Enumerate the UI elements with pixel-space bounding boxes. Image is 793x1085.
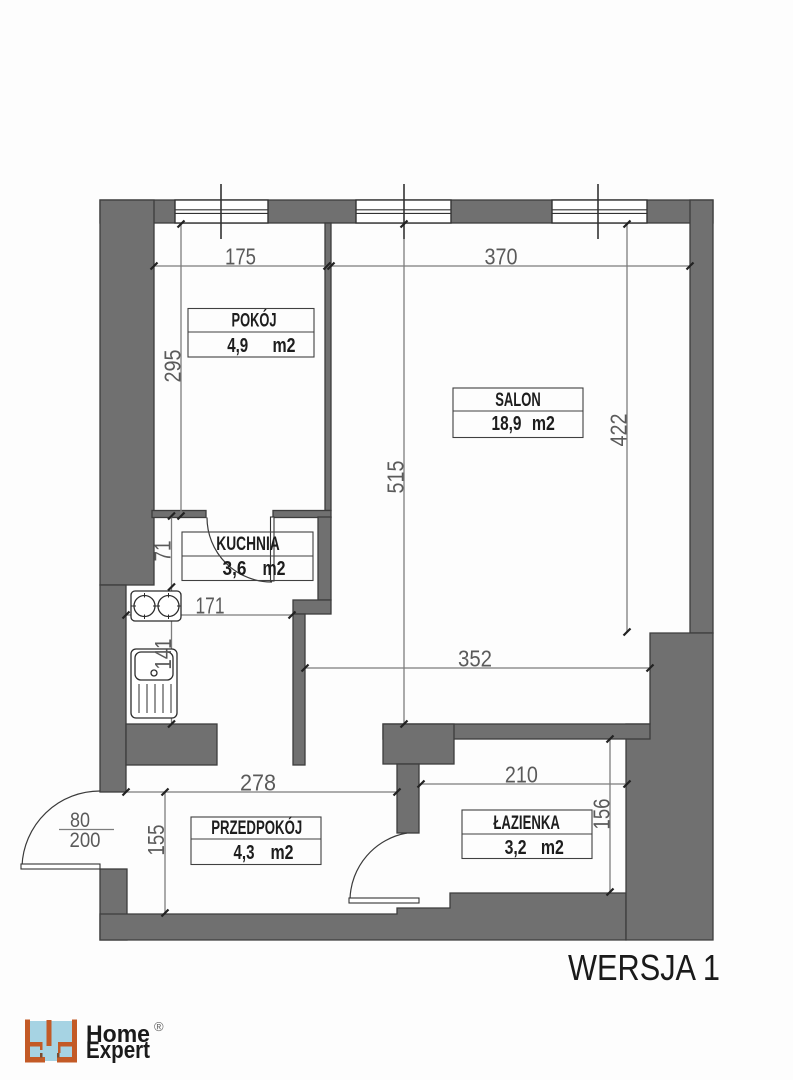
svg-text:4,3: 4,3 [234,842,255,864]
svg-text:m2: m2 [273,335,296,357]
svg-text:18,9: 18,9 [492,413,522,435]
svg-text:171: 171 [196,593,225,619]
svg-text:m2: m2 [541,837,564,859]
svg-text:m2: m2 [271,842,294,864]
svg-text:WERSJA 1: WERSJA 1 [568,947,720,988]
svg-text:155: 155 [143,825,169,856]
svg-text:KUCHNIA: KUCHNIA [216,534,280,555]
svg-text:SALON: SALON [495,390,541,411]
svg-text:175: 175 [225,244,256,270]
svg-text:ŁAZIENKA: ŁAZIENKA [493,813,560,834]
svg-text:141: 141 [150,639,176,670]
svg-text:352: 352 [458,646,492,672]
svg-text:3,2: 3,2 [505,837,527,859]
svg-text:200: 200 [70,829,101,852]
svg-text:Expert: Expert [86,1037,150,1064]
svg-text:515: 515 [383,461,409,494]
svg-text:m2: m2 [263,558,286,580]
svg-text:POKÓJ: POKÓJ [232,310,277,332]
svg-text:278: 278 [240,770,276,796]
svg-text:PRZEDPOKÓJ: PRZEDPOKÓJ [211,817,302,839]
svg-text:71: 71 [150,541,176,562]
svg-text:3,6: 3,6 [223,558,247,580]
svg-text:®: ® [154,1019,164,1034]
svg-text:4,9: 4,9 [227,335,248,357]
svg-text:210: 210 [505,762,538,788]
svg-text:295: 295 [160,350,186,383]
svg-text:422: 422 [606,414,632,447]
svg-text:370: 370 [485,244,518,270]
svg-text:m2: m2 [532,413,555,435]
